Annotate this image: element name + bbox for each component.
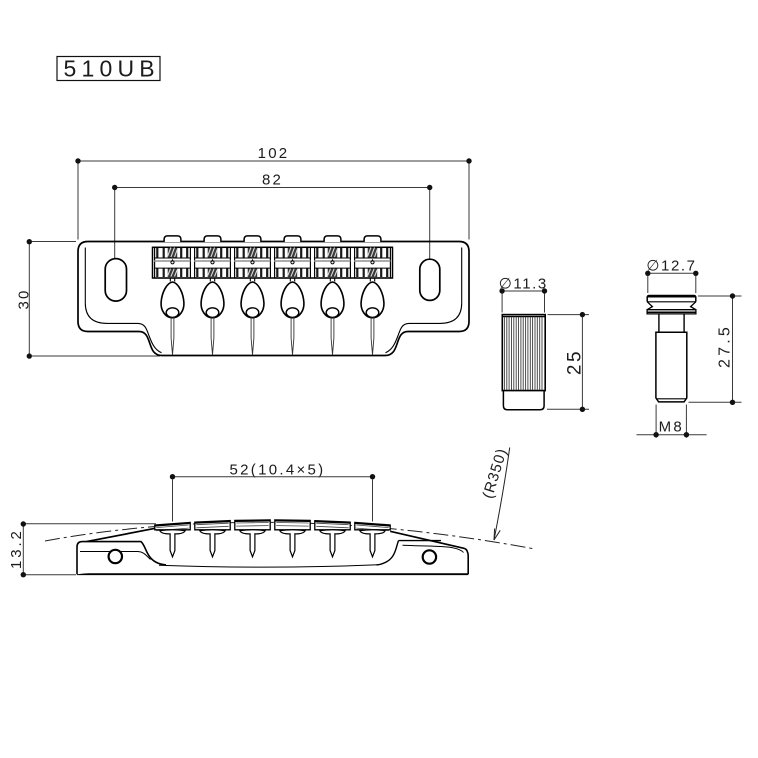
svg-text:52(10.4×5): 52(10.4×5) <box>230 462 326 479</box>
svg-text:M8: M8 <box>659 418 684 435</box>
svg-text:82: 82 <box>262 172 283 189</box>
svg-text:∅12.7: ∅12.7 <box>646 257 696 274</box>
svg-text:13.2: 13.2 <box>8 528 25 569</box>
svg-text:510UB: 510UB <box>64 56 160 82</box>
svg-text:30: 30 <box>15 288 32 309</box>
svg-text:27.5: 27.5 <box>716 324 733 368</box>
svg-text:102: 102 <box>258 145 290 162</box>
svg-text:25: 25 <box>565 349 586 375</box>
svg-text:∅11.3: ∅11.3 <box>499 275 548 292</box>
